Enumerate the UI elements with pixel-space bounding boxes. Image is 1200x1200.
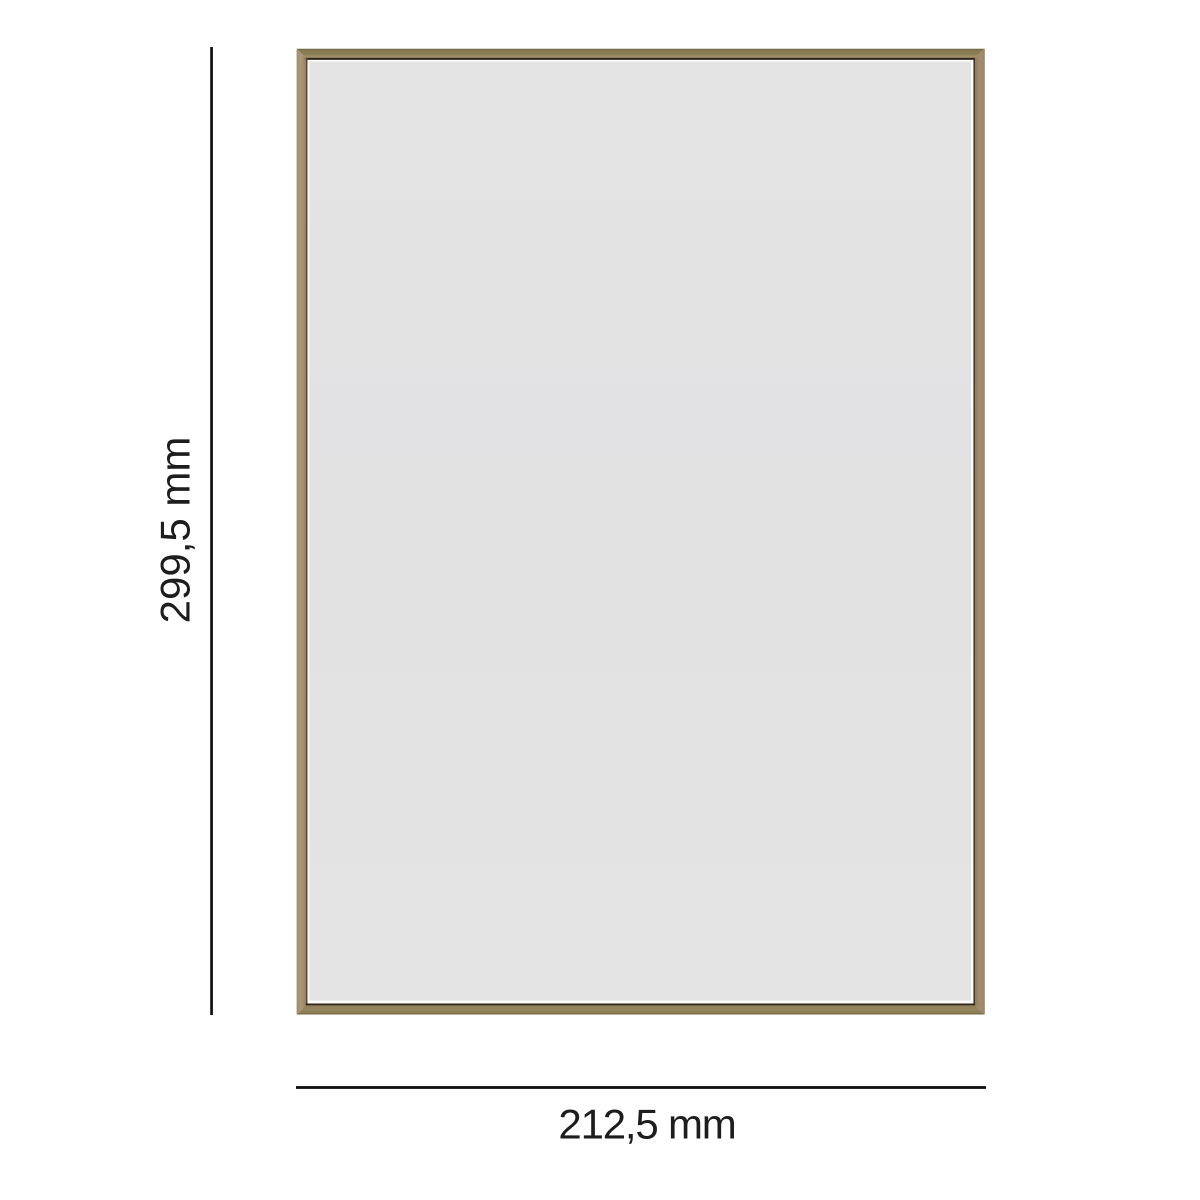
svg-text:212,5 mm: 212,5 mm <box>558 1101 735 1148</box>
svg-text:299,5 mm: 299,5 mm <box>152 437 199 624</box>
